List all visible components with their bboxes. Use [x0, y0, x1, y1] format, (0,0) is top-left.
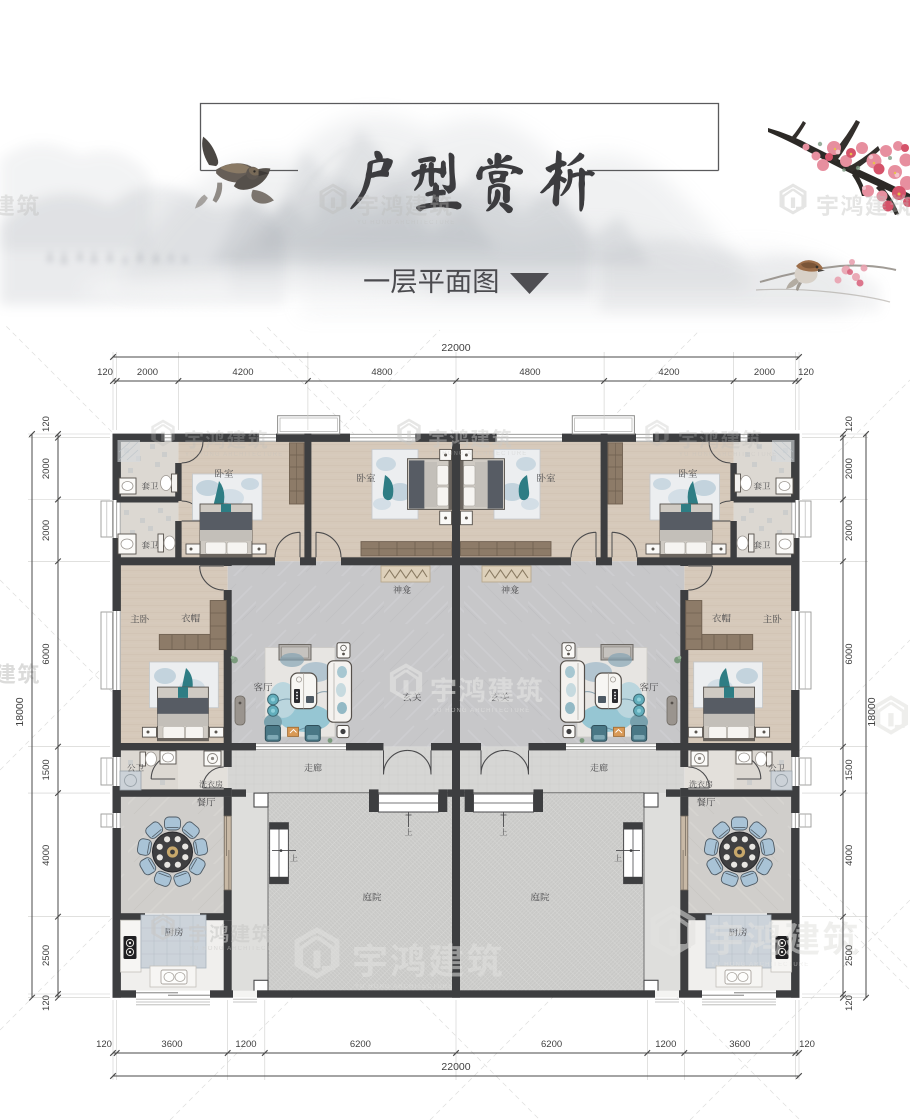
- svg-text:18000: 18000: [866, 697, 878, 726]
- svg-text:2500: 2500: [41, 945, 52, 966]
- svg-text:6200: 6200: [350, 1039, 371, 1050]
- svg-text:120: 120: [41, 995, 52, 1011]
- svg-text:YU HONG ARCHITECTURE: YU HONG ARCHITECTURE: [432, 708, 530, 714]
- svg-text:120: 120: [844, 995, 855, 1011]
- svg-text:2000: 2000: [844, 520, 855, 541]
- svg-text:YU HONG ARCHITECTURE: YU HONG ARCHITECTURE: [429, 451, 527, 457]
- svg-text:120: 120: [97, 367, 113, 378]
- svg-text:22000: 22000: [441, 1061, 470, 1073]
- svg-text:6000: 6000: [844, 643, 855, 664]
- svg-text:120: 120: [96, 1039, 112, 1050]
- svg-text:YU HONG ARCHITECTURE: YU HONG ARCHITECTURE: [679, 452, 777, 458]
- svg-text:2000: 2000: [844, 458, 855, 479]
- svg-text:22000: 22000: [441, 342, 470, 354]
- svg-text:1500: 1500: [844, 759, 855, 780]
- svg-text:YU HONG ARCHITECTURE: YU HONG ARCHITECTURE: [189, 946, 287, 952]
- svg-text:YU HONG ARCHITECTURE: YU HONG ARCHITECTURE: [711, 962, 809, 968]
- svg-text:1500: 1500: [41, 759, 52, 780]
- svg-text:YU HONG ARCHITECTURE: YU HONG ARCHITECTURE: [185, 452, 283, 458]
- svg-text:1200: 1200: [235, 1039, 256, 1050]
- svg-text:2000: 2000: [41, 520, 52, 541]
- svg-text:6200: 6200: [541, 1039, 562, 1050]
- svg-text:2500: 2500: [844, 945, 855, 966]
- svg-text:4000: 4000: [41, 845, 52, 866]
- svg-text:3600: 3600: [729, 1039, 750, 1050]
- svg-text:120: 120: [799, 1039, 815, 1050]
- svg-text:2000: 2000: [754, 367, 775, 378]
- svg-text:3600: 3600: [161, 1039, 182, 1050]
- svg-text:4200: 4200: [232, 367, 253, 378]
- svg-text:2000: 2000: [137, 367, 158, 378]
- svg-text:6000: 6000: [41, 643, 52, 664]
- svg-text:YU HONG ARCHITECTURE: YU HONG ARCHITECTURE: [355, 984, 453, 990]
- svg-text:120: 120: [844, 416, 855, 432]
- svg-text:1200: 1200: [655, 1039, 676, 1050]
- svg-text:4000: 4000: [844, 845, 855, 866]
- svg-text:YU HONG ARCHITECTURE: YU HONG ARCHITECTURE: [357, 220, 455, 226]
- svg-text:18000: 18000: [14, 697, 26, 726]
- svg-text:4200: 4200: [658, 367, 679, 378]
- svg-text:4800: 4800: [371, 367, 392, 378]
- svg-text:120: 120: [41, 416, 52, 432]
- svg-text:120: 120: [798, 367, 814, 378]
- svg-text:2000: 2000: [41, 458, 52, 479]
- svg-text:4800: 4800: [519, 367, 540, 378]
